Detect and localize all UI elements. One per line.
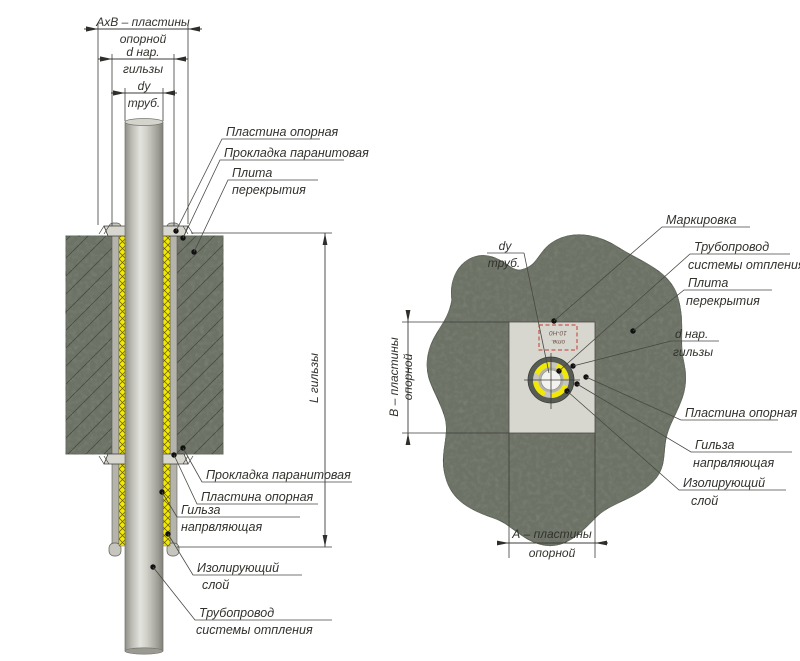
label-dnar-plan-line2: гильзы (673, 345, 713, 359)
technical-drawing: АхВ – пластины опорной d нар. гильзы dу … (0, 0, 800, 661)
dim-a-line1: А – пластины (511, 527, 592, 541)
dim-du-line1: dу (138, 79, 152, 93)
label-truba-plan-line1: Трубопровод (694, 240, 769, 254)
marking-text-line2: 10-Н0 (549, 329, 567, 336)
arrow-du-right (163, 90, 175, 95)
drawing-canvas: АхВ – пластины опорной d нар. гильзы dу … (0, 0, 800, 661)
label-plita-line2: перекрытия (232, 183, 306, 197)
section-labels-bottom: Прокладка паранитовая Пластина опорная Г… (150, 445, 352, 637)
label-izol-plan-line1: Изолирующий (683, 476, 765, 490)
arrow-axb-right (188, 26, 200, 31)
dim-length-label: L гильзы (307, 353, 321, 403)
label-plita-plan-line2: перекрытия (686, 294, 760, 308)
arrow-dnar-right (174, 56, 186, 61)
label-plastina-top: Пластина опорная (226, 125, 339, 139)
arrow-b-top (406, 310, 411, 322)
arrow-length-top (323, 233, 328, 245)
section-view: АхВ – пластины опорной d нар. гильзы dу … (66, 15, 369, 654)
label-izol-plan-line2: слой (691, 494, 718, 508)
pipe-section (125, 119, 163, 655)
dim-a-line2: опорной (529, 546, 576, 560)
label-prokladka-bottom: Прокладка паранитовая (206, 468, 351, 482)
label-dnar-plan-line1: d нар. (675, 327, 708, 341)
slab-hatch-left (66, 236, 114, 454)
insulation-right (163, 229, 170, 546)
label-gilza-plan-line1: Гильза (695, 438, 734, 452)
label-markirovka: Маркировка (666, 213, 737, 227)
plan-view: отв. 10-Н0 В – пластины опорной А – плас… (387, 213, 800, 560)
dim-axb-line1: АхВ – пластины (95, 15, 190, 29)
plan-dimension-b: В – пластины опорной (387, 310, 415, 445)
label-truba-plan-line2: системы отпления (688, 258, 800, 272)
dim-du-line2: труб. (128, 96, 160, 110)
label-plita-plan-line1: Плита (688, 276, 728, 290)
arrow-a-left (497, 541, 509, 546)
arrow-b-bottom (406, 433, 411, 445)
label-plastina-bottom: Пластина опорная (201, 490, 314, 504)
arrow-length-bottom (323, 535, 328, 547)
dim-b-line2: опорной (401, 353, 415, 400)
pipe-body (125, 122, 163, 651)
dim-dnar-line1: d нар. (126, 45, 159, 59)
arrow-dnar-left (100, 56, 112, 61)
slab-hatch-right (176, 236, 223, 454)
label-gilza-plan-line2: напрвляющая (693, 456, 774, 470)
label-prokladka-top: Прокладка паранитовая (224, 146, 369, 160)
label-truba-line2: системы отпления (196, 623, 313, 637)
label-gilza-line2: напрвляющая (181, 520, 262, 534)
label-plastina-plan: Пластина опорная (685, 406, 798, 420)
dim-axb-line2: опорной (120, 32, 167, 46)
label-plita-line1: Плита (232, 166, 272, 180)
marking-text-line1: отв. (551, 338, 565, 345)
sleeve-wall-left (112, 227, 119, 547)
pipe-top-cap (125, 119, 163, 126)
label-izol-line2: слой (202, 578, 229, 592)
label-gilza-line1: Гильза (181, 503, 220, 517)
arrow-a-right (595, 541, 607, 546)
dim-dnar-line2: гильзы (123, 62, 163, 76)
label-du-plan-line1: dу (499, 239, 513, 253)
label-izol-line1: Изолирующий (197, 561, 279, 575)
dim-b-line1: В – пластины (387, 337, 401, 417)
label-du-plan-line2: труб. (488, 256, 520, 270)
label-truba-line1: Трубопровод (199, 606, 274, 620)
pipe-bottom-cap (125, 648, 163, 654)
sleeve-wall-right (170, 227, 177, 547)
arrow-du-left (113, 90, 125, 95)
section-labels-top: Пластина опорная Прокладка паранитовая П… (173, 125, 369, 255)
